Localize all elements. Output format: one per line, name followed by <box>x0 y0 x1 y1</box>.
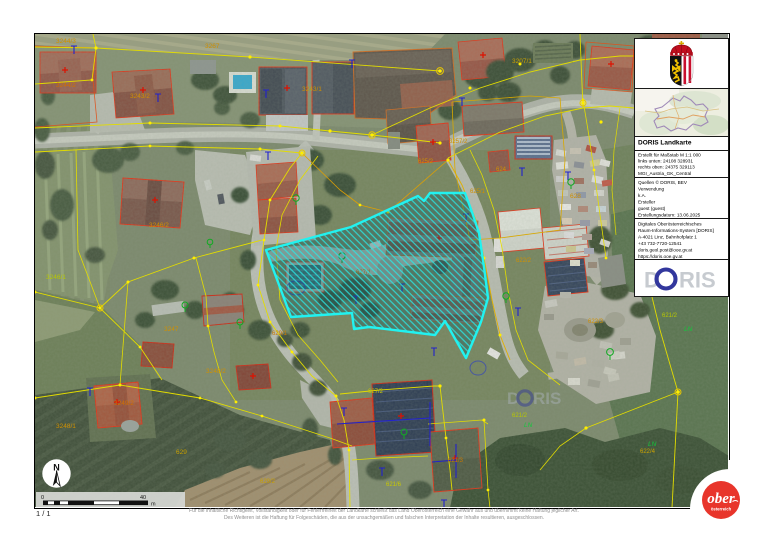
svg-text:3248/1: 3248/1 <box>56 423 76 430</box>
svg-text:622/3: 622/3 <box>588 319 604 325</box>
svg-text:3246/1: 3246/1 <box>46 274 66 281</box>
svg-text:621/2: 621/2 <box>512 413 528 419</box>
svg-text:629/2: 629/2 <box>260 479 276 485</box>
svg-text:0: 0 <box>41 495 44 501</box>
svg-text:3244/2: 3244/2 <box>56 82 76 89</box>
svg-text:621/6: 621/6 <box>386 482 402 488</box>
svg-text:3207/1: 3207/1 <box>512 58 532 65</box>
svg-text:40: 40 <box>140 495 146 501</box>
svg-text:621/3: 621/3 <box>448 458 464 464</box>
svg-text:628: 628 <box>570 193 581 200</box>
svg-text:624: 624 <box>496 167 507 173</box>
svg-text:LN: LN <box>684 326 693 333</box>
svg-text:3247: 3247 <box>164 326 179 333</box>
svg-text:625/2: 625/2 <box>418 159 434 165</box>
svg-text:629/1: 629/1 <box>272 331 288 337</box>
svg-text:622/2: 622/2 <box>516 258 532 264</box>
svg-text:RIS: RIS <box>533 389 561 408</box>
svg-text:3267: 3267 <box>205 43 220 50</box>
svg-text:3243/1: 3243/1 <box>302 86 322 93</box>
svg-text:3257/2: 3257/2 <box>449 139 468 145</box>
svg-text:621/2: 621/2 <box>662 313 678 319</box>
svg-text:3246/2: 3246/2 <box>149 222 169 229</box>
svg-text:3243/2: 3243/2 <box>130 93 150 100</box>
svg-text:622/4: 622/4 <box>640 449 656 455</box>
svg-text:RIS: RIS <box>679 268 716 293</box>
svg-text:LN: LN <box>648 441 657 448</box>
svg-text:ober: ober <box>707 491 735 507</box>
svg-text:3249/2: 3249/2 <box>114 400 134 407</box>
svg-text:m: m <box>151 502 156 508</box>
svg-text:627/2: 627/2 <box>368 389 384 395</box>
svg-text:3248/2: 3248/2 <box>206 368 226 375</box>
svg-text:625/1: 625/1 <box>470 189 486 195</box>
svg-text:LN: LN <box>524 422 533 429</box>
svg-text:3244/3: 3244/3 <box>56 38 76 45</box>
svg-text:629: 629 <box>176 449 187 456</box>
